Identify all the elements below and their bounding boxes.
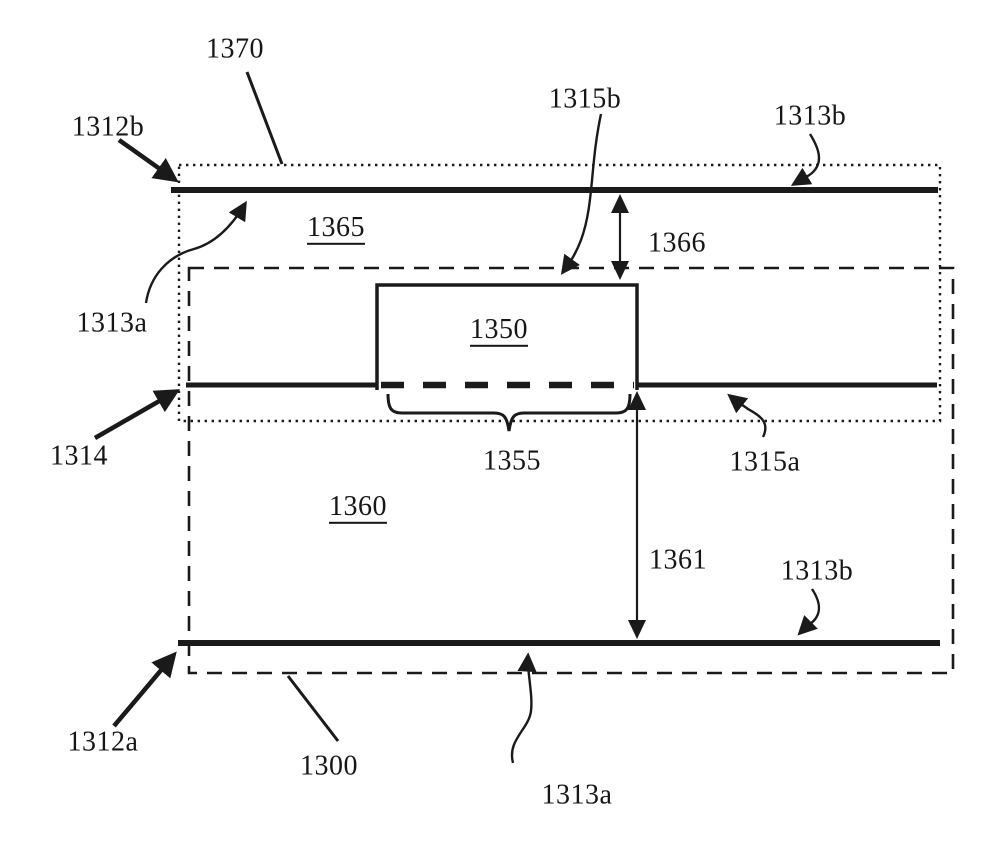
brace-1355 bbox=[388, 394, 630, 431]
arrowhead-1361-down bbox=[628, 620, 646, 639]
arrow-1314 bbox=[95, 392, 175, 438]
curvy-arrow-1315a bbox=[730, 396, 765, 437]
curvy-arrow-1313b-top bbox=[794, 134, 819, 184]
arrow-1312b bbox=[119, 140, 174, 179]
leader-line-1300 bbox=[288, 676, 338, 741]
arrow-1312a bbox=[114, 656, 173, 726]
label-1355: 1355 bbox=[483, 446, 541, 475]
label-1313a-top: 1313a bbox=[77, 308, 148, 337]
label-1312a: 1312a bbox=[68, 727, 139, 756]
label-1315a: 1315a bbox=[730, 447, 801, 476]
arrowhead-1366-up bbox=[611, 194, 629, 213]
label-1350: 1350 bbox=[470, 315, 528, 347]
label-1370: 1370 bbox=[206, 34, 264, 63]
label-1313b-bottom: 1313b bbox=[781, 556, 854, 585]
arrowhead-1366-down bbox=[611, 261, 629, 280]
label-1312b: 1312b bbox=[72, 112, 145, 141]
label-1365: 1365 bbox=[307, 213, 365, 245]
figure-canvas: 1370 1312b 1315b 1313b 1365 1366 1313a 1… bbox=[0, 0, 1000, 851]
leader-line-1370 bbox=[247, 72, 282, 164]
label-1315b: 1315b bbox=[549, 84, 622, 113]
dashed-boundary-1300 bbox=[189, 268, 953, 673]
curvy-arrow-1313a-top bbox=[146, 204, 245, 303]
label-1313a-bottom: 1313a bbox=[542, 780, 613, 809]
diagram-linework bbox=[0, 0, 1000, 851]
label-1300: 1300 bbox=[300, 751, 358, 780]
label-1314: 1314 bbox=[50, 441, 108, 470]
label-1361: 1361 bbox=[649, 545, 707, 574]
label-1313b-top: 1313b bbox=[774, 101, 847, 130]
label-1366: 1366 bbox=[648, 228, 706, 257]
curvy-arrow-1313b-bottom bbox=[800, 589, 819, 633]
label-1360: 1360 bbox=[329, 492, 387, 524]
